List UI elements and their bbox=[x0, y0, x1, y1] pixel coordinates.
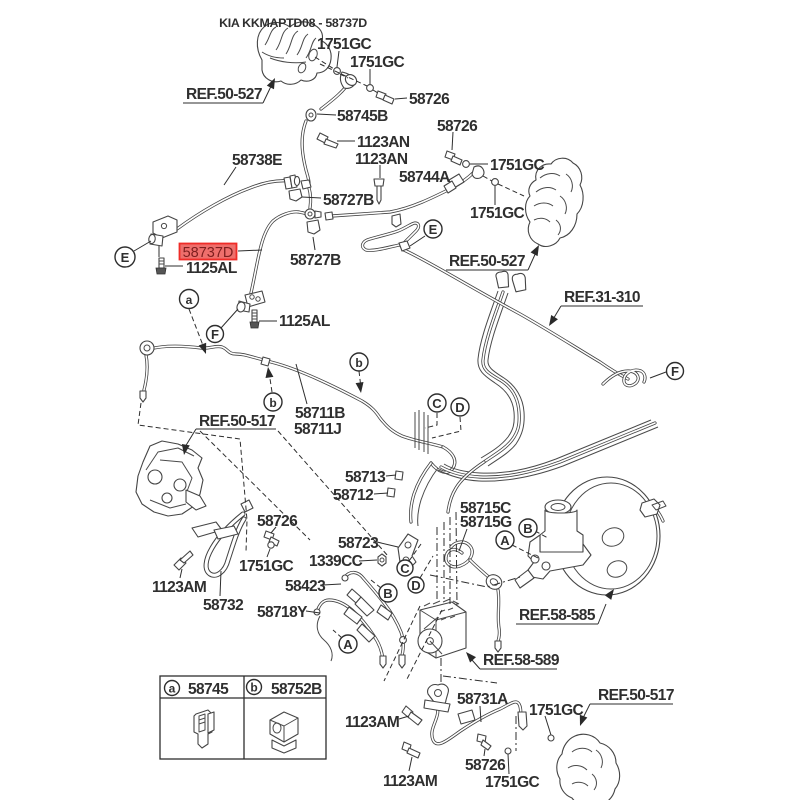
svg-text:1751GC: 1751GC bbox=[239, 558, 294, 575]
svg-text:1339CC: 1339CC bbox=[309, 553, 363, 570]
svg-text:58731A: 58731A bbox=[457, 691, 508, 708]
svg-text:D: D bbox=[411, 578, 420, 593]
svg-text:58715G: 58715G bbox=[460, 514, 512, 531]
svg-text:1123AM: 1123AM bbox=[345, 714, 399, 731]
svg-text:a: a bbox=[169, 682, 176, 696]
svg-text:REF.50-527: REF.50-527 bbox=[449, 253, 525, 270]
svg-text:REF.58-589: REF.58-589 bbox=[483, 652, 560, 669]
svg-text:58732: 58732 bbox=[203, 597, 243, 614]
svg-text:REF.50-517: REF.50-517 bbox=[199, 413, 275, 430]
svg-text:1751GC: 1751GC bbox=[485, 774, 540, 791]
svg-text:58423: 58423 bbox=[285, 578, 326, 595]
svg-text:58726: 58726 bbox=[409, 91, 450, 108]
svg-text:C: C bbox=[432, 396, 442, 411]
svg-text:F: F bbox=[211, 327, 219, 342]
svg-text:1751GC: 1751GC bbox=[317, 36, 372, 53]
svg-text:58713: 58713 bbox=[345, 469, 386, 486]
svg-text:1751GC: 1751GC bbox=[470, 205, 525, 222]
svg-text:58727B: 58727B bbox=[290, 252, 341, 269]
svg-text:D: D bbox=[455, 400, 464, 415]
svg-text:1123AN: 1123AN bbox=[355, 151, 408, 168]
svg-text:58711J: 58711J bbox=[294, 421, 341, 438]
svg-text:58718Y: 58718Y bbox=[257, 604, 308, 621]
svg-text:b: b bbox=[250, 681, 257, 695]
svg-text:1123AM: 1123AM bbox=[383, 773, 437, 790]
svg-text:58711B: 58711B bbox=[295, 405, 345, 422]
svg-text:KIA KKMAPTD08 - 58737D: KIA KKMAPTD08 - 58737D bbox=[219, 16, 367, 30]
svg-text:58726: 58726 bbox=[437, 118, 478, 135]
svg-text:1125AL: 1125AL bbox=[186, 260, 237, 277]
svg-text:58738E: 58738E bbox=[232, 152, 282, 169]
svg-text:E: E bbox=[121, 250, 130, 265]
svg-text:B: B bbox=[523, 521, 532, 536]
svg-text:58752B: 58752B bbox=[271, 681, 322, 698]
svg-text:b: b bbox=[355, 356, 362, 370]
svg-text:B: B bbox=[383, 586, 392, 601]
svg-text:58727B: 58727B bbox=[323, 192, 374, 209]
svg-text:A: A bbox=[343, 637, 353, 652]
svg-text:E: E bbox=[429, 222, 438, 237]
svg-text:REF.50-527: REF.50-527 bbox=[186, 86, 262, 103]
svg-text:58745: 58745 bbox=[188, 681, 229, 698]
svg-text:58744A: 58744A bbox=[399, 169, 450, 186]
svg-text:1751GC: 1751GC bbox=[529, 702, 584, 719]
svg-text:F: F bbox=[671, 364, 679, 379]
svg-text:1751GC: 1751GC bbox=[490, 157, 545, 174]
svg-text:REF.31-310: REF.31-310 bbox=[564, 289, 640, 306]
svg-text:C: C bbox=[400, 561, 410, 576]
svg-text:1125AL: 1125AL bbox=[279, 313, 330, 330]
svg-text:58726: 58726 bbox=[465, 757, 506, 774]
svg-text:1751GC: 1751GC bbox=[350, 54, 405, 71]
svg-text:58712: 58712 bbox=[333, 487, 373, 504]
svg-text:b: b bbox=[269, 396, 276, 410]
svg-text:REF.58-585: REF.58-585 bbox=[519, 607, 596, 624]
svg-text:1123AN: 1123AN bbox=[357, 134, 410, 151]
svg-text:a: a bbox=[186, 293, 193, 307]
svg-text:A: A bbox=[500, 533, 510, 548]
svg-text:58723: 58723 bbox=[338, 535, 379, 552]
svg-text:1123AM: 1123AM bbox=[152, 579, 206, 596]
svg-text:58745B: 58745B bbox=[337, 108, 388, 125]
svg-text:REF.50-517: REF.50-517 bbox=[598, 687, 674, 704]
svg-text:58737D: 58737D bbox=[183, 245, 234, 261]
svg-text:58726: 58726 bbox=[257, 513, 298, 530]
